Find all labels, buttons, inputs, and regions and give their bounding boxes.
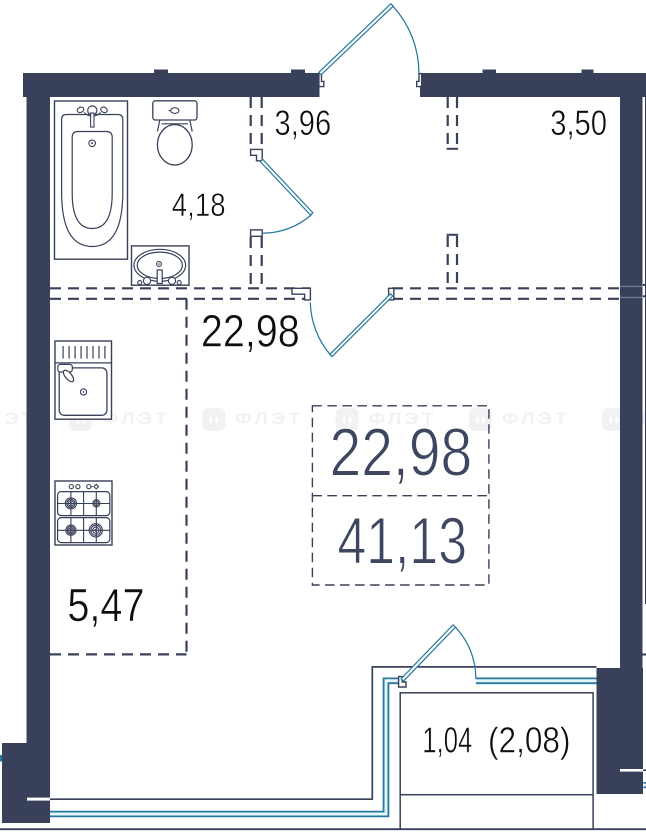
svg-text:1,04: 1,04 — [422, 720, 472, 760]
svg-text:4,18: 4,18 — [172, 188, 226, 224]
svg-text:ФЛЭТ: ФЛЭТ — [235, 408, 303, 428]
svg-text:3,96: 3,96 — [275, 104, 332, 143]
svg-text:ФЛЭТ: ФЛЭТ — [102, 408, 170, 428]
svg-text:ФЛЭТ: ФЛЭТ — [502, 408, 570, 428]
svg-text:41,13: 41,13 — [338, 505, 467, 578]
svg-text:3,50: 3,50 — [550, 104, 607, 143]
svg-text:5,47: 5,47 — [67, 580, 144, 631]
svg-text:22,98: 22,98 — [330, 415, 473, 491]
svg-text:(2,08): (2,08) — [488, 721, 571, 762]
svg-text:22,98: 22,98 — [201, 306, 300, 357]
